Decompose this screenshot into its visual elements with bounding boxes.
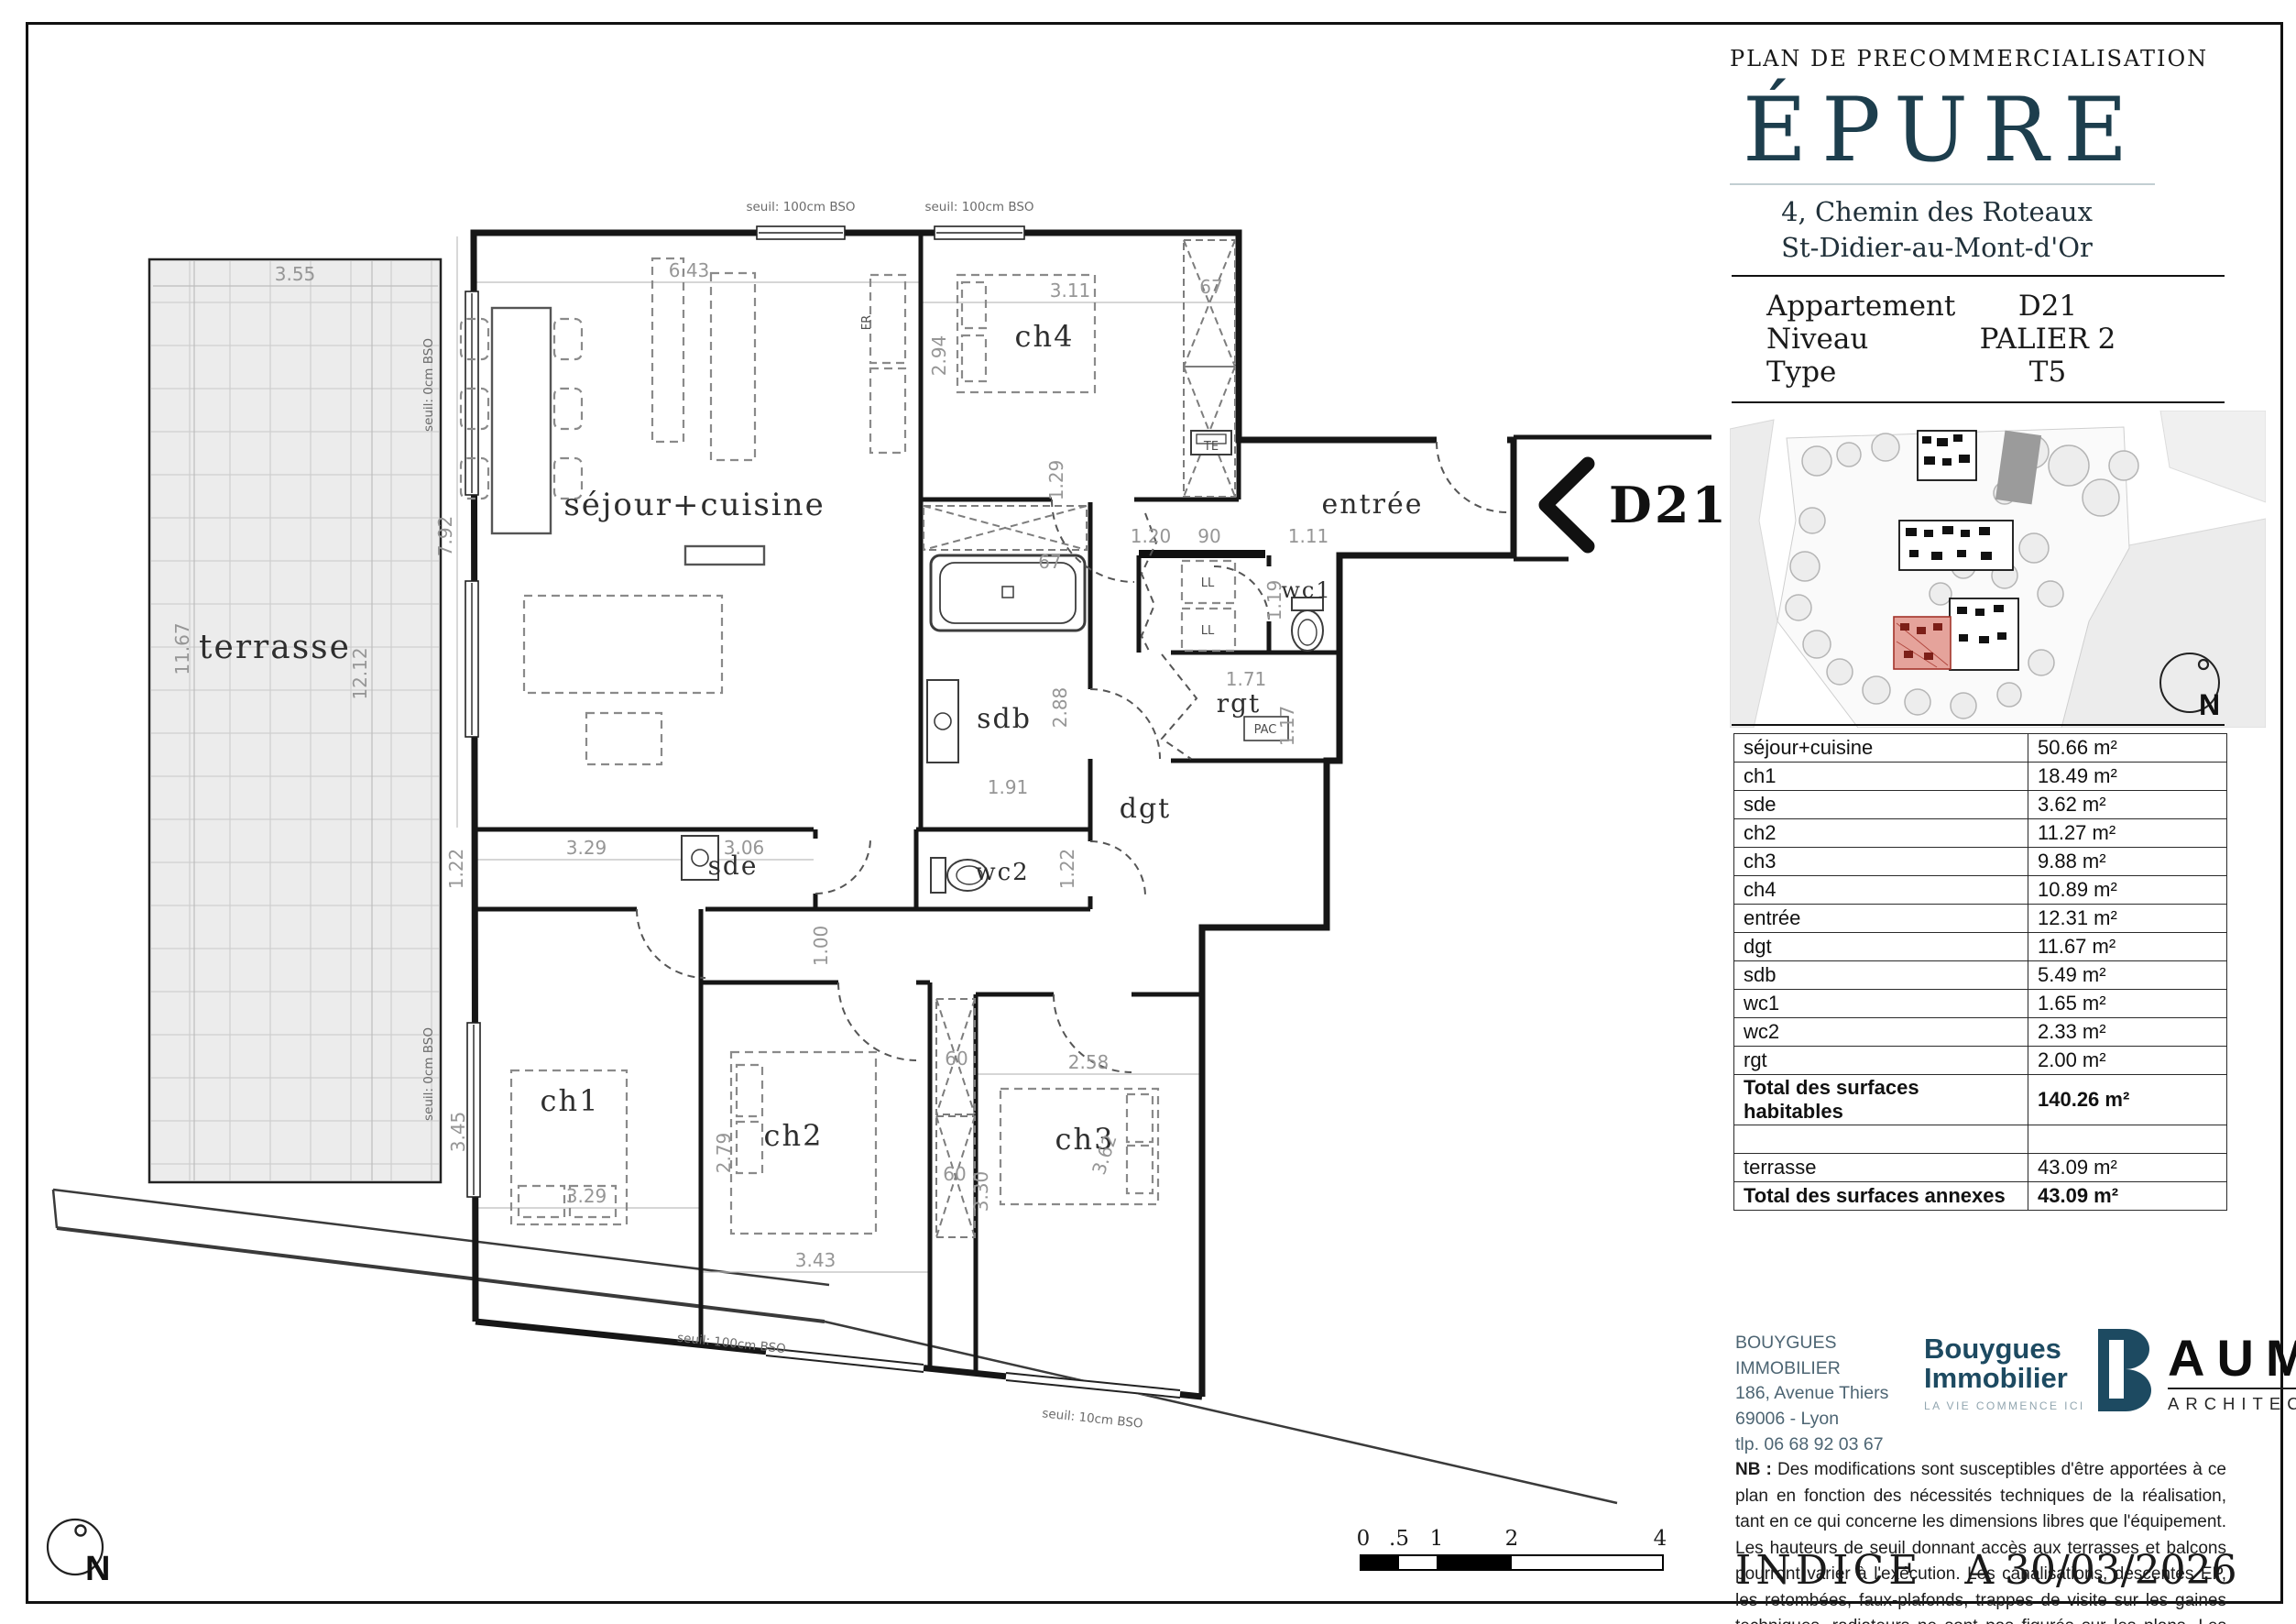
scale-label: 0 bbox=[1357, 1527, 1371, 1551]
entry-door bbox=[1437, 442, 1507, 512]
surface-label: entrée bbox=[1734, 905, 2028, 933]
app-label: LL bbox=[1201, 624, 1215, 638]
info-row-type: Type T5 bbox=[1732, 356, 2225, 389]
svg-text:N: N bbox=[2199, 688, 2220, 721]
dim-label: 1.91 bbox=[988, 776, 1029, 798]
dim-label: 3.55 bbox=[275, 263, 316, 285]
dim-label: 3.45 bbox=[447, 1112, 469, 1153]
room-label: ch2 bbox=[764, 1118, 824, 1153]
seuil-label: seuil: 100cm BSO bbox=[676, 1331, 786, 1356]
contact-street: 186, Avenue Thiers bbox=[1735, 1381, 1932, 1407]
dim-label: 1.00 bbox=[810, 926, 832, 967]
kitchen-island bbox=[652, 258, 683, 442]
surface-value: 50.66 m² bbox=[2028, 734, 2227, 763]
contact-city: 69006 - Lyon bbox=[1735, 1407, 1932, 1432]
surface-label: ch4 bbox=[1734, 876, 2028, 905]
table-row: ch211.27 m² bbox=[1734, 819, 2227, 848]
info-value: D21 bbox=[1942, 290, 2153, 323]
room-label: terrasse bbox=[199, 629, 351, 666]
dim-label: 3.43 bbox=[795, 1249, 836, 1271]
dim-label: 12.12 bbox=[349, 647, 371, 699]
walls bbox=[474, 233, 1711, 1397]
dim-label: 7.92 bbox=[434, 516, 456, 557]
surface-label: séjour+cuisine bbox=[1734, 734, 2028, 763]
surface-label: ch2 bbox=[1734, 819, 2028, 848]
surface-value bbox=[2028, 1125, 2227, 1154]
aum-subtitle: ARCHITECTES bbox=[2168, 1388, 2296, 1414]
dim-label: 2.94 bbox=[928, 335, 950, 377]
table-row: sde3.62 m² bbox=[1734, 791, 2227, 819]
wc2-toilet bbox=[931, 858, 946, 893]
coffee-table bbox=[586, 713, 661, 764]
site-map: N bbox=[1730, 411, 2266, 728]
table-row bbox=[1734, 1125, 2227, 1154]
info-value: T5 bbox=[1942, 356, 2153, 389]
divider bbox=[1732, 401, 2225, 403]
surface-label: rgt bbox=[1734, 1047, 2028, 1075]
scale-bar: 0 .5 1 2 4 bbox=[1360, 1527, 1671, 1575]
surface-value: 140.26 m² bbox=[2028, 1075, 2227, 1125]
indice-value: A bbox=[1964, 1547, 1998, 1594]
dim-label: 1.11 bbox=[1288, 525, 1329, 547]
table-row: entrée12.31 m² bbox=[1734, 905, 2227, 933]
app-label: PAC bbox=[1254, 723, 1277, 737]
table-row: ch39.88 m² bbox=[1734, 848, 2227, 876]
app-label: LL bbox=[1201, 576, 1215, 590]
terrace bbox=[149, 259, 441, 1182]
bouygues-b-icon bbox=[2093, 1327, 2157, 1411]
surface-value: 11.67 m² bbox=[2028, 933, 2227, 961]
table-row: dgt11.67 m² bbox=[1734, 933, 2227, 961]
unit-marker: D21 bbox=[1546, 464, 1722, 546]
surface-label: dgt bbox=[1734, 933, 2028, 961]
site-building-highlighted bbox=[1894, 617, 1951, 669]
dim-label: 2.58 bbox=[1068, 1051, 1110, 1073]
seuil-label: seuil: 10cm BSO bbox=[1042, 1406, 1144, 1431]
scale-label: 4 bbox=[1654, 1527, 1667, 1551]
indice: INDICEA bbox=[1735, 1547, 1998, 1594]
north-letter: N bbox=[85, 1550, 110, 1588]
aum-logo: AUM ARCHITECTES bbox=[2168, 1333, 2296, 1414]
scale-label: 2 bbox=[1505, 1527, 1519, 1551]
title-block: PLAN DE PRECOMMERCIALISATION ÉPURE 4, Ch… bbox=[1730, 22, 2280, 1598]
address-line2: St-Didier-au-Mont-d'Or bbox=[1730, 230, 2144, 266]
seuil-label: seuil: 100cm BSO bbox=[746, 200, 855, 214]
surface-value: 43.09 m² bbox=[2028, 1154, 2227, 1182]
table-row: rgt2.00 m² bbox=[1734, 1047, 2227, 1075]
surface-label: sdb bbox=[1734, 961, 2028, 990]
surface-label: ch1 bbox=[1734, 763, 2028, 791]
info-row-niveau: Niveau PALIER 2 bbox=[1732, 323, 2225, 356]
surface-value: 43.09 m² bbox=[2028, 1182, 2227, 1211]
site-building-bottom bbox=[1950, 598, 2018, 670]
windows bbox=[465, 226, 1180, 1398]
bouygues-line2: Immobilier bbox=[1924, 1364, 2089, 1393]
scale-bar-segments bbox=[1360, 1554, 1664, 1571]
room-label: séjour+cuisine bbox=[563, 487, 825, 523]
seuil-label: seuil: 100cm BSO bbox=[924, 200, 1033, 214]
info-label: Appartement bbox=[1766, 290, 1955, 323]
table-row: séjour+cuisine50.66 m² bbox=[1734, 734, 2227, 763]
dim-label: 1.22 bbox=[445, 849, 467, 890]
doors bbox=[637, 442, 1507, 1072]
seuil-label: seuil: 0cm BSO bbox=[421, 1027, 436, 1121]
surface-table: séjour+cuisine50.66 m²ch118.49 m²sde3.62… bbox=[1733, 733, 2227, 1211]
info-label: Type bbox=[1766, 356, 1836, 389]
contact-block: BOUYGUES IMMOBILIER 186, Avenue Thiers 6… bbox=[1735, 1331, 1932, 1457]
document-title: PLAN DE PRECOMMERCIALISATION bbox=[1730, 46, 2144, 71]
room-label: wc2 bbox=[975, 859, 1029, 886]
table-row: wc22.33 m² bbox=[1734, 1018, 2227, 1047]
dim-label: 1.71 bbox=[1226, 668, 1267, 690]
surface-value: 9.88 m² bbox=[2028, 848, 2227, 876]
surface-label: sde bbox=[1734, 791, 2028, 819]
surface-value: 10.89 m² bbox=[2028, 876, 2227, 905]
dim-label: 90 bbox=[1197, 525, 1220, 547]
table-row: wc11.65 m² bbox=[1734, 990, 2227, 1018]
room-label: rgt bbox=[1217, 688, 1262, 719]
seuil-label: seuil: 0cm BSO bbox=[421, 338, 436, 432]
contact-phone: tlp. 06 68 92 03 67 bbox=[1735, 1432, 1932, 1458]
dim-label: 1.19 bbox=[1263, 580, 1285, 621]
dim-label: 3.30 bbox=[970, 1171, 992, 1213]
dim-label: 60 bbox=[943, 1163, 966, 1185]
surface-value: 2.33 m² bbox=[2028, 1018, 2227, 1047]
surface-label: wc1 bbox=[1734, 990, 2028, 1018]
table-row: terrasse43.09 m² bbox=[1734, 1154, 2227, 1182]
scale-label: 1 bbox=[1430, 1527, 1444, 1551]
table-row: ch410.89 m² bbox=[1734, 876, 2227, 905]
nb-prefix: NB : bbox=[1735, 1460, 1772, 1479]
surface-value: 3.62 m² bbox=[2028, 791, 2227, 819]
indice-label: INDICE bbox=[1735, 1547, 1922, 1594]
nb-note: NB : Des modifications sont susceptibles… bbox=[1735, 1457, 2226, 1624]
site-boundary bbox=[53, 1190, 1617, 1503]
room-label: ch4 bbox=[1015, 319, 1075, 354]
nb-text: Des modifications sont susceptibles d'êt… bbox=[1735, 1460, 2226, 1624]
scale-label: .5 bbox=[1389, 1527, 1409, 1551]
dim-label: 2.88 bbox=[1049, 687, 1071, 729]
floor-plan: D21 N terrasseséjour+cuisinech4entréewc1… bbox=[0, 0, 1722, 1624]
plan-date: 30/03/2026 bbox=[2005, 1547, 2225, 1594]
surface-value: 12.31 m² bbox=[2028, 905, 2227, 933]
dim-label: 1.22 bbox=[1056, 849, 1078, 890]
dim-label: 3.11 bbox=[1050, 280, 1091, 302]
room-label: dgt bbox=[1120, 793, 1171, 825]
dim-label: 2.79 bbox=[713, 1133, 735, 1174]
surface-value: 18.49 m² bbox=[2028, 763, 2227, 791]
divider bbox=[1732, 275, 2225, 277]
surface-label: Total des surfaces habitables bbox=[1734, 1075, 2028, 1125]
table-row: ch118.49 m² bbox=[1734, 763, 2227, 791]
surface-label: terrasse bbox=[1734, 1154, 2028, 1182]
north-arrow: N bbox=[48, 1520, 110, 1588]
dim-label: 1.29 bbox=[1045, 460, 1067, 501]
dim-label: 60 bbox=[945, 1048, 968, 1070]
site-building-top bbox=[1918, 431, 1976, 480]
contact-company: BOUYGUES IMMOBILIER bbox=[1735, 1331, 1932, 1381]
surface-label: wc2 bbox=[1734, 1018, 2028, 1047]
divider bbox=[1732, 724, 2225, 726]
dim-label: 1.20 bbox=[1131, 525, 1172, 547]
surface-label: Total des surfaces annexes bbox=[1734, 1182, 2028, 1211]
plan-sheet: D21 N terrasseséjour+cuisinech4entréewc1… bbox=[0, 0, 2296, 1624]
unit-label: D21 bbox=[1609, 476, 1722, 534]
dim-label: 3.29 bbox=[566, 1185, 607, 1207]
room-label: entrée bbox=[1322, 488, 1424, 521]
surface-value: 1.65 m² bbox=[2028, 990, 2227, 1018]
surface-label bbox=[1734, 1125, 2028, 1154]
bouygues-logo: Bouygues Immobilier LA VIE COMMENCE ICI bbox=[1924, 1334, 2089, 1412]
room-label: sdb bbox=[977, 703, 1032, 735]
room-label: ch1 bbox=[541, 1083, 600, 1118]
room-label: wc1 bbox=[1281, 577, 1331, 603]
dim-label: 67 bbox=[1199, 276, 1222, 298]
site-building-middle bbox=[1899, 521, 2013, 570]
fridge bbox=[870, 275, 905, 363]
tv-console bbox=[685, 546, 764, 565]
surface-table-body: séjour+cuisine50.66 m²ch118.49 m²sde3.62… bbox=[1734, 734, 2227, 1211]
app-label: FR bbox=[860, 315, 874, 331]
info-label: Niveau bbox=[1766, 323, 1868, 356]
table-row: Total des surfaces annexes43.09 m² bbox=[1734, 1182, 2227, 1211]
table-row: Total des surfaces habitables140.26 m² bbox=[1734, 1075, 2227, 1125]
dim-label: 1.17 bbox=[1276, 706, 1298, 747]
info-row-appartement: Appartement D21 bbox=[1732, 290, 2225, 323]
info-value: PALIER 2 bbox=[1942, 323, 2153, 356]
project-name: ÉPURE bbox=[1730, 86, 2155, 185]
surface-value: 5.49 m² bbox=[2028, 961, 2227, 990]
dim-label: 11.67 bbox=[171, 622, 193, 675]
table-row: sdb5.49 m² bbox=[1734, 961, 2227, 990]
dim-label: 67 bbox=[1038, 551, 1061, 573]
bouygues-line1: Bouygues bbox=[1924, 1334, 2089, 1364]
dim-label: 3.29 bbox=[566, 837, 607, 859]
app-label: TE bbox=[1203, 440, 1219, 454]
bouygues-tagline: LA VIE COMMENCE ICI bbox=[1924, 1399, 2089, 1412]
surface-value: 11.27 m² bbox=[2028, 819, 2227, 848]
surface-value: 2.00 m² bbox=[2028, 1047, 2227, 1075]
dim-label: 6.43 bbox=[669, 259, 710, 281]
dining-table bbox=[492, 308, 551, 533]
unit-arrow-icon bbox=[1546, 464, 1588, 546]
address-line1: 4, Chemin des Roteaux bbox=[1730, 194, 2144, 230]
surface-label: ch3 bbox=[1734, 848, 2028, 876]
aum-name: AUM bbox=[2168, 1333, 2296, 1384]
sofa bbox=[524, 596, 722, 693]
dim-label: 3.06 bbox=[724, 837, 765, 859]
closets bbox=[924, 240, 1235, 1237]
